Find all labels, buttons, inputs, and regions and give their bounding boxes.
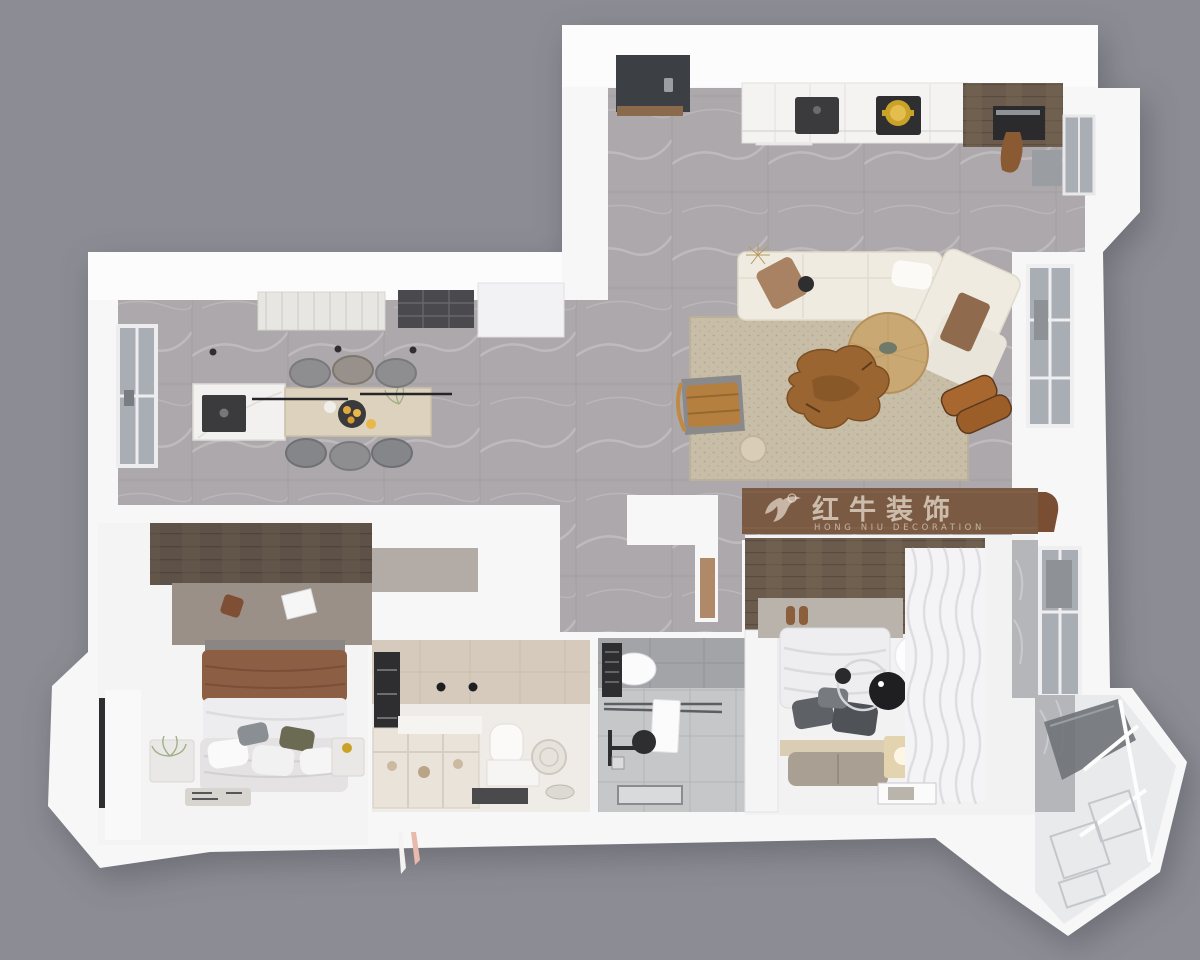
dark-mat — [472, 788, 528, 804]
leather-chair — [676, 375, 745, 435]
slipper — [799, 606, 808, 625]
floor-drain — [618, 786, 682, 804]
entry — [616, 55, 690, 116]
cylinder-heater — [532, 740, 566, 774]
table-lamp — [342, 743, 352, 753]
white-wardrobe — [745, 630, 778, 812]
master-rug — [172, 583, 372, 645]
master-bed — [200, 640, 348, 792]
hall-floor-upper — [560, 505, 627, 545]
closet-cabinet — [372, 548, 478, 592]
bedroom2-window — [1012, 540, 1080, 698]
watermark-en: HONG NIU DECORATION — [814, 523, 985, 533]
gray-pillow — [817, 687, 848, 709]
range-hood-box — [478, 283, 564, 337]
vanity-box — [487, 760, 539, 786]
floor-lamp-base — [546, 785, 574, 799]
storage-caddy — [602, 643, 622, 697]
floorplan-svg: 红牛装饰 HONG NIU DECORATION — [0, 0, 1200, 960]
wood-accent-wall — [150, 523, 372, 585]
shower-head — [632, 730, 656, 754]
kitchen-sink — [795, 97, 839, 134]
entry-door — [616, 55, 690, 112]
black-bowl — [798, 276, 814, 292]
room-walkin-bath — [372, 640, 590, 812]
storage-shelving — [373, 716, 482, 808]
fruit-plate — [338, 400, 366, 428]
pillow — [299, 746, 337, 775]
pillow — [251, 744, 295, 777]
room-bedroom2 — [745, 535, 1035, 815]
room-hall-bath — [598, 638, 758, 812]
table-stone — [879, 342, 897, 354]
slipper — [786, 606, 795, 625]
door-threshold — [617, 106, 683, 116]
small-dish — [324, 401, 336, 413]
living-tall-window — [1028, 266, 1072, 426]
kitchen-counter — [742, 83, 968, 143]
ceiling-grille — [398, 290, 474, 328]
door-lock — [664, 78, 673, 92]
wood-niche — [700, 558, 715, 618]
master-window — [99, 690, 141, 840]
toilet — [490, 724, 523, 764]
counter-band — [398, 716, 482, 734]
wardrobe-band: 红牛装饰 HONG NIU DECORATION — [742, 488, 1038, 534]
wave-curtains — [905, 548, 985, 804]
floorplan-render: 红牛装饰 HONG NIU DECORATION — [0, 0, 1200, 960]
dining-window — [118, 326, 156, 466]
watermark-cn: 红牛装饰 — [812, 494, 960, 526]
foot-tray — [185, 788, 251, 806]
travertine-stool — [740, 436, 766, 462]
